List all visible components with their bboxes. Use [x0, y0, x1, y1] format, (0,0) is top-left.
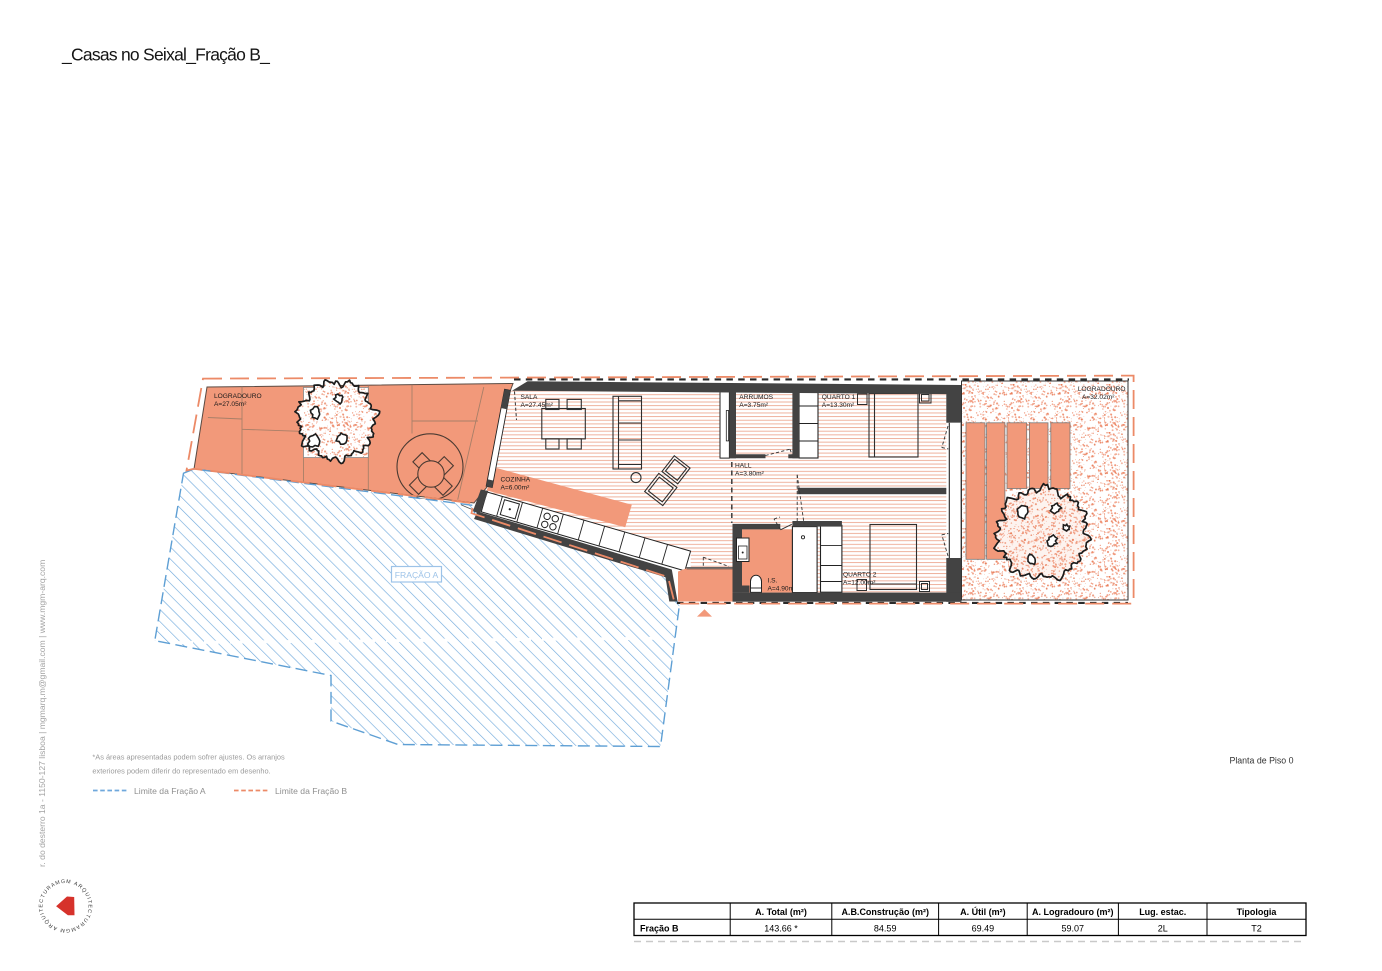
svg-text:COZINHA: COZINHA — [501, 477, 531, 484]
svg-text:T2: T2 — [1251, 923, 1262, 933]
svg-text:Lug. estac.: Lug. estac. — [1139, 907, 1186, 917]
svg-text:59.07: 59.07 — [1062, 923, 1085, 933]
svg-text:exteriores podem diferir do re: exteriores podem diferir do representado… — [92, 767, 270, 776]
svg-text:A.B.Construção (m²): A.B.Construção (m²) — [841, 907, 929, 917]
svg-text:A=3.80m²: A=3.80m² — [735, 471, 765, 478]
svg-text:LOGRADOURO: LOGRADOURO — [1078, 386, 1126, 393]
svg-text:Limite da Fração B: Limite da Fração B — [275, 786, 347, 796]
svg-text:A. Útil (m²): A. Útil (m²) — [960, 906, 1006, 917]
svg-text:A. Total (m²): A. Total (m²) — [755, 907, 807, 917]
svg-text:84.59: 84.59 — [874, 923, 897, 933]
svg-text:FRAÇÃO A: FRAÇÃO A — [395, 570, 439, 580]
svg-text:QUARTO 1: QUARTO 1 — [822, 394, 856, 401]
svg-text:69.49: 69.49 — [972, 923, 995, 933]
svg-text:Planta de Piso 0: Planta de Piso 0 — [1229, 756, 1293, 766]
svg-text:143.66 *: 143.66 * — [764, 923, 798, 933]
svg-text:*As áreas apresentadas podem s: *As áreas apresentadas podem sofrer ajus… — [92, 753, 285, 762]
svg-text:A=27.05m²: A=27.05m² — [214, 401, 247, 408]
svg-text:HALL: HALL — [735, 463, 752, 470]
svg-text:_Casas no Seixal_Fração B_: _Casas no Seixal_Fração B_ — [61, 45, 270, 66]
svg-text:ARRUMOS: ARRUMOS — [739, 394, 773, 401]
svg-text:2L: 2L — [1158, 923, 1168, 933]
svg-text:A=32.02m²: A=32.02m² — [1082, 394, 1115, 401]
svg-text:I.S.: I.S. — [768, 578, 778, 585]
svg-text:r. do desterro 1a - 1150-127 l: r. do desterro 1a - 1150-127 lisboa | mg… — [37, 560, 47, 867]
svg-text:Limite da Fração A: Limite da Fração A — [134, 786, 206, 796]
svg-text:A=6.00m²: A=6.00m² — [501, 485, 531, 492]
svg-text:A. Logradouro (m²): A. Logradouro (m²) — [1032, 907, 1114, 917]
svg-text:A=12.00m²: A=12.00m² — [843, 580, 876, 587]
svg-text:LOGRADOURO: LOGRADOURO — [214, 393, 262, 400]
svg-text:A=3.75m²: A=3.75m² — [739, 402, 769, 409]
svg-text:A=27.45m²: A=27.45m² — [521, 402, 554, 409]
svg-text:Tipologia: Tipologia — [1237, 907, 1278, 917]
svg-text:Fração B: Fração B — [640, 923, 679, 933]
svg-text:QUARTO 2: QUARTO 2 — [843, 572, 877, 579]
svg-text:SALA: SALA — [521, 394, 538, 401]
svg-text:A=13.30m²: A=13.30m² — [822, 402, 855, 409]
